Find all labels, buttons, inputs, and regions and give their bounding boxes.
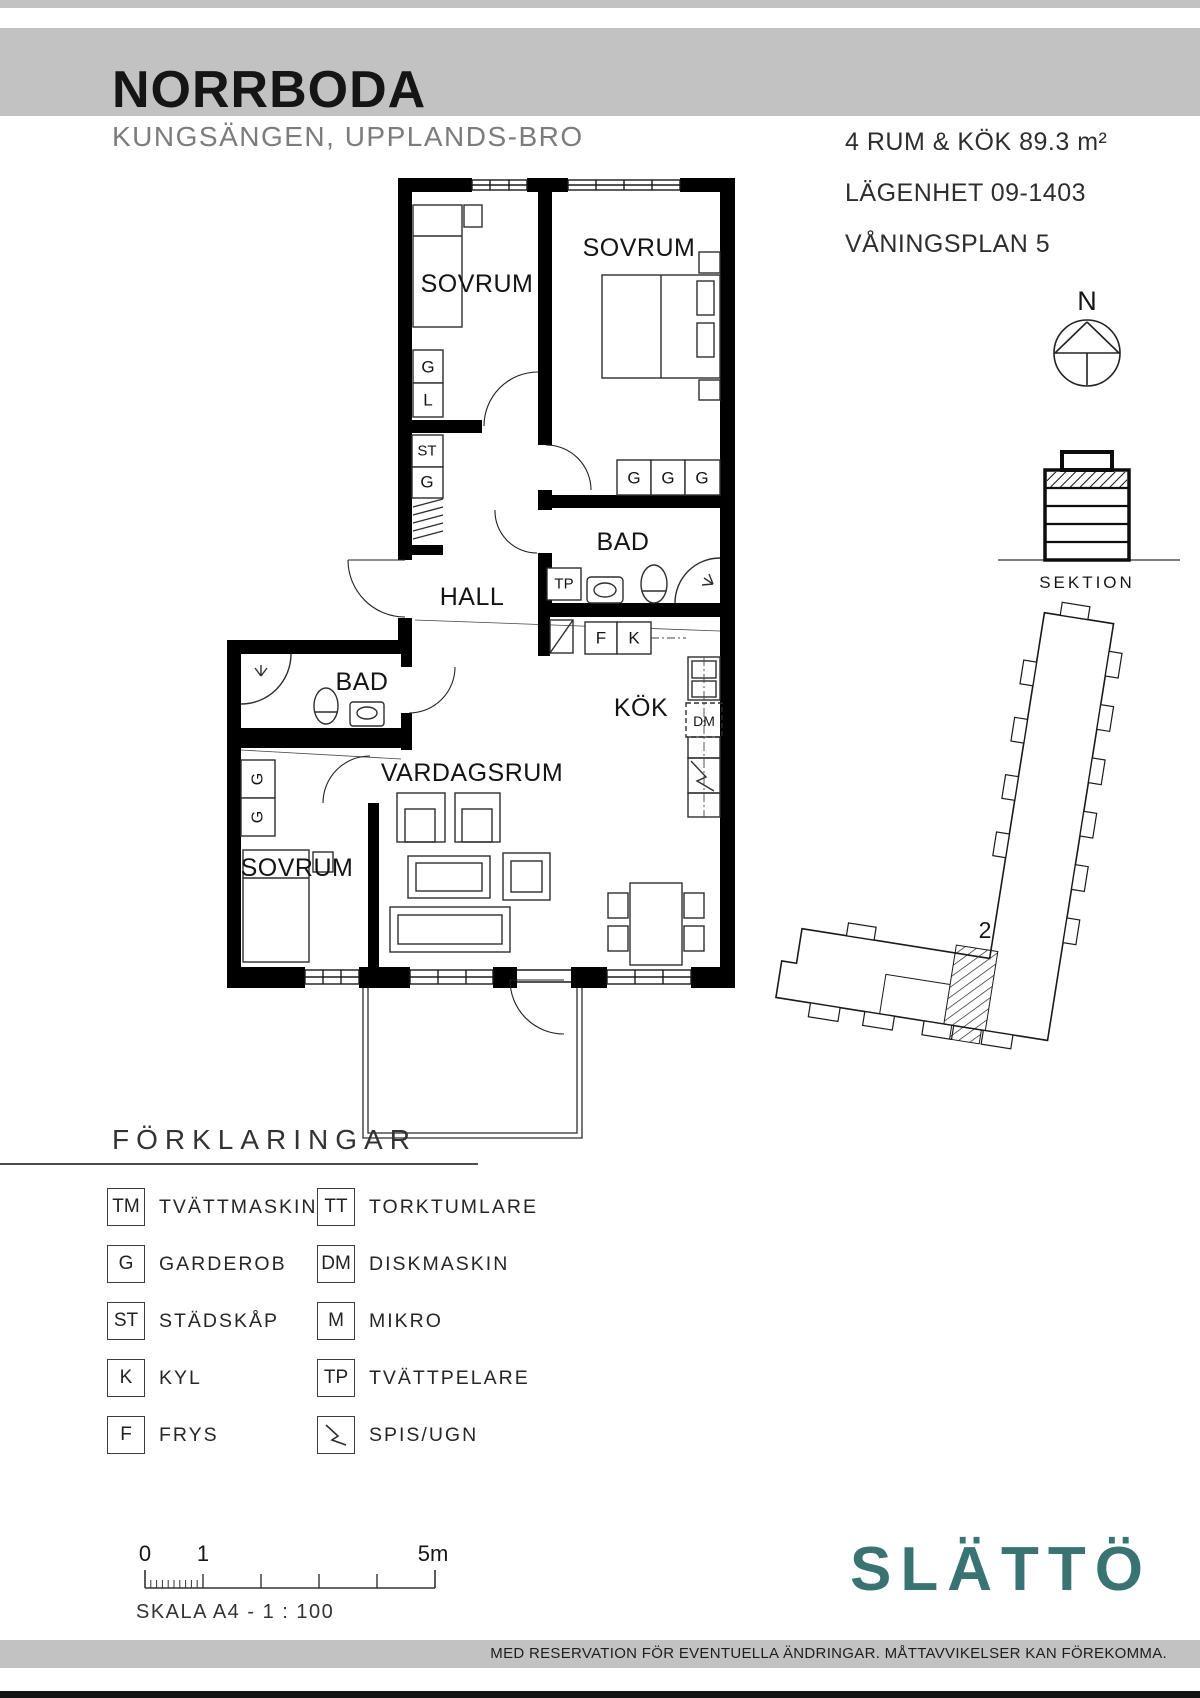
legend-code-tp: TP [317, 1359, 355, 1397]
room-label-vardagsrum: VARDAGSRUM [381, 759, 563, 787]
room-label-hall: HALL [440, 583, 505, 611]
legend-item-dm: DM DISKMASKIN [317, 1246, 538, 1282]
apartment-floor: VÅNINGSPLAN 5 [845, 230, 1050, 259]
marker-frys: F [596, 629, 606, 648]
room-label-bad-2: BAD [336, 668, 389, 696]
spis-ugn-icon [317, 1416, 355, 1454]
floorplan-sheet: NORRBODA KUNGSÄNGEN, UPPLANDS-BRO 4 RUM … [0, 0, 1200, 1698]
legend-code-st: ST [107, 1302, 145, 1340]
legend-item-k: K KYL [107, 1360, 318, 1396]
marker-garderob: G [250, 773, 267, 785]
brand-logo: SLÄTTÖ [850, 1534, 1152, 1605]
room-label-bad-1: BAD [597, 528, 650, 556]
page-title: NORRBODA [112, 60, 426, 120]
dining-table [630, 883, 682, 965]
scale-tick-1: 1 [197, 1543, 209, 1566]
legend-code-f: F [107, 1416, 145, 1454]
toilet [641, 565, 667, 603]
legend-item-m: M MIKRO [317, 1303, 538, 1339]
legend-heading: FÖRKLARINGAR [112, 1124, 417, 1156]
armchair [503, 853, 550, 900]
scale-tick-0: 0 [139, 1543, 151, 1566]
scale-text: SKALA A4 - 1 : 100 [136, 1601, 334, 1624]
sink [350, 702, 384, 726]
legend-item-tp: TP TVÄTTPELARE [317, 1360, 538, 1396]
marker-garderob: G [695, 469, 708, 488]
compass-north-label: N [1077, 286, 1097, 316]
room-label-kok: KÖK [614, 694, 668, 722]
disclaimer-band: MED RESERVATION FÖR EVENTUELLA ÄNDRINGAR… [0, 1640, 1200, 1668]
legend-item-g: G GARDEROB [107, 1246, 318, 1282]
shower [675, 558, 720, 603]
legend-item-tm: TM TVÄTTMASKIN [107, 1189, 318, 1225]
legend-code-g: G [107, 1245, 145, 1283]
marker-garderob: G [421, 358, 434, 377]
legend-code-dm: DM [317, 1245, 355, 1283]
marker-stadskap: ST [417, 443, 436, 460]
legend-item-tt: TT TORKTUMLARE [317, 1189, 538, 1225]
top-strip [0, 0, 1200, 8]
scale-bar: 0 1 5m [133, 1543, 463, 1605]
page-subtitle: KUNGSÄNGEN, UPPLANDS-BRO [112, 121, 584, 153]
apartment-id: LÄGENHET 09-1403 [845, 179, 1086, 208]
room-label-sovrum-1: SOVRUM [421, 270, 534, 298]
marker-garderob: G [627, 469, 640, 488]
legend: TM TVÄTTMASKIN G GARDEROB ST STÄDSKÅP K … [107, 1189, 587, 1469]
legend-code-m: M [317, 1302, 355, 1340]
sink [587, 577, 623, 603]
legend-column-left: TM TVÄTTMASKIN G GARDEROB ST STÄDSKÅP K … [107, 1189, 318, 1474]
legend-column-right: TT TORKTUMLARE DM DISKMASKIN M MIKRO TP … [317, 1189, 538, 1474]
legend-item-spis: SPIS/UGN [317, 1417, 538, 1453]
section-label: SEKTION [1039, 573, 1135, 592]
legend-code-tm: TM [107, 1188, 145, 1226]
marker-garderob: G [661, 469, 674, 488]
site-plan-drawing: 2 [770, 600, 1190, 1070]
marker-kyl: K [628, 629, 640, 648]
marker-tvattpelare: TP [554, 576, 573, 593]
scale-tick-5m: 5m [418, 1543, 449, 1566]
balcony-outline [363, 988, 582, 1138]
room-label-sovrum-3: SOVRUM [241, 854, 354, 882]
section-icon: SEKTION [990, 438, 1185, 598]
legend-item-f: F FRYS [107, 1417, 318, 1453]
marker-garderob: G [420, 473, 433, 492]
building-number: 2 [979, 917, 992, 943]
toilet [314, 688, 338, 724]
disclaimer-text: MED RESERVATION FÖR EVENTUELLA ÄNDRINGAR… [490, 1640, 1167, 1668]
shower [241, 654, 291, 704]
coffee-table [408, 856, 490, 898]
bottom-bar [0, 1691, 1200, 1698]
marker-garderob: G [250, 811, 267, 823]
bed [413, 205, 462, 327]
sofa [390, 907, 510, 952]
compass-north-icon: N [1048, 278, 1138, 408]
legend-code-tt: TT [317, 1188, 355, 1226]
legend-code-k: K [107, 1359, 145, 1397]
marker-linne: L [423, 391, 432, 410]
apartment-size: 4 RUM & KÖK 89.3 m² [845, 128, 1107, 157]
room-label-sovrum-2: SOVRUM [583, 234, 696, 262]
floorplan-drawing: G L ST G G G G TP F K G G DM [185, 160, 745, 1150]
legend-divider [0, 1163, 478, 1165]
legend-item-st: ST STÄDSKÅP [107, 1303, 318, 1339]
